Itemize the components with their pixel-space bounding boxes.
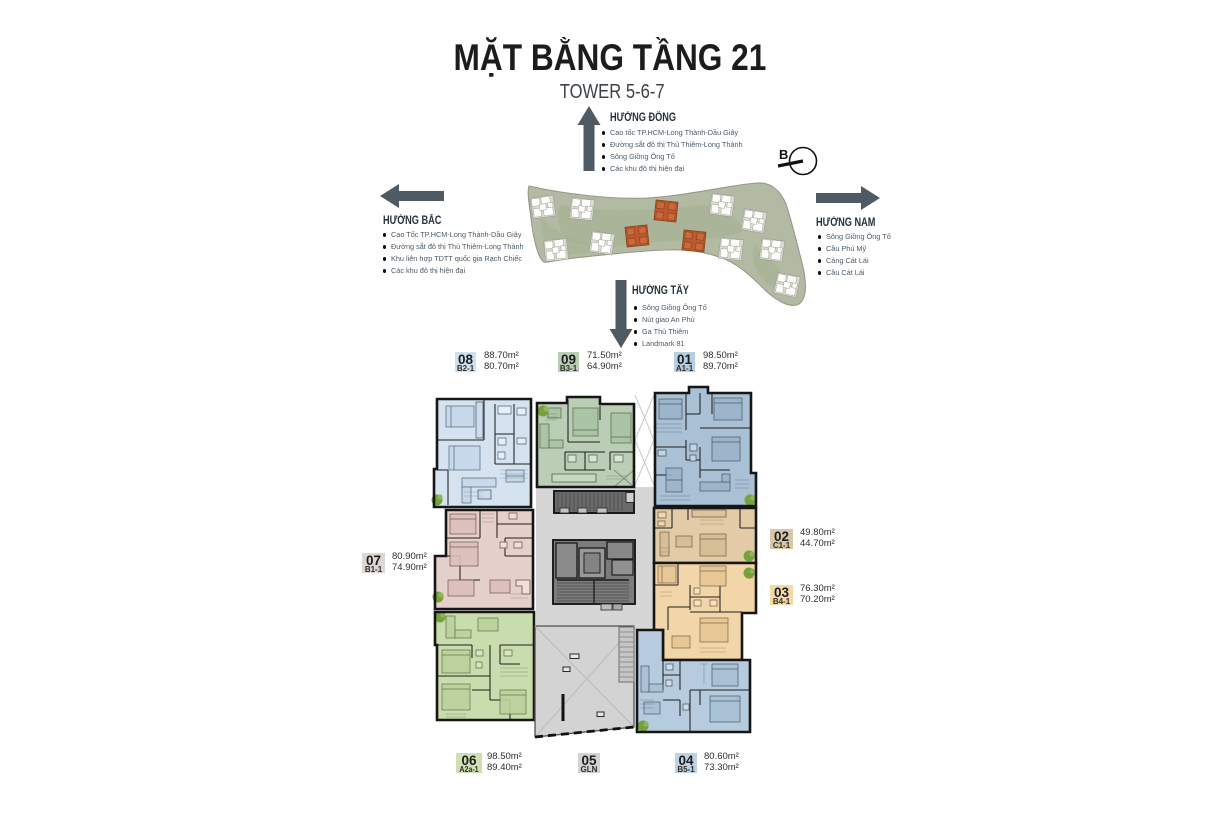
svg-text:B: B	[779, 147, 788, 162]
